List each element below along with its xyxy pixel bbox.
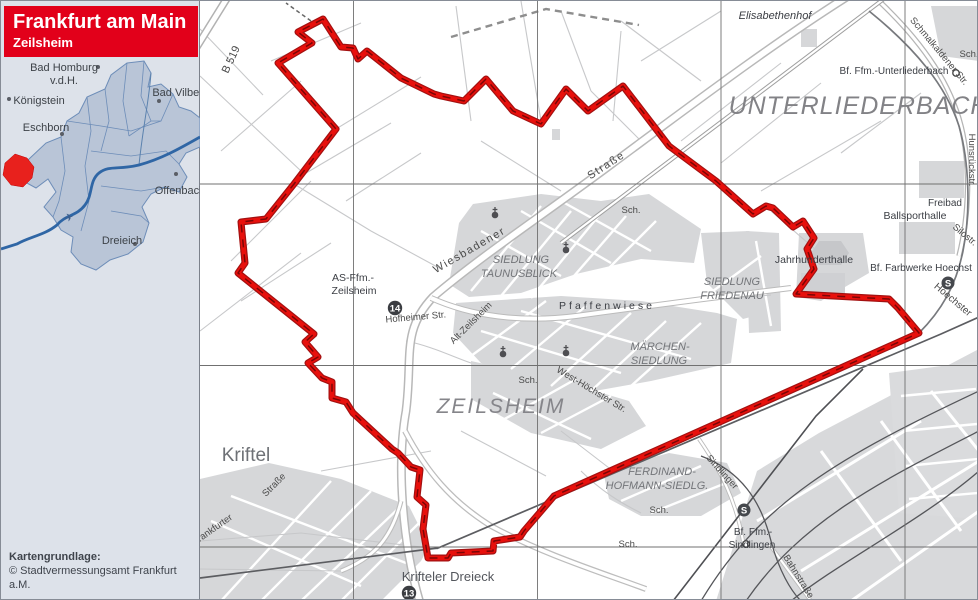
label-elisabethenhof: Elisabethenhof	[739, 10, 813, 22]
attribution-heading: Kartengrundlage:	[9, 550, 199, 564]
page-title: Frankfurt am Main	[13, 11, 198, 34]
inset-label-bad-vilbel: Bad Vilbel	[152, 87, 200, 99]
label-sch: Sch.	[621, 205, 640, 216]
label-bf-unterliederbach: Bf. Ffm.-Unterliederbach	[840, 66, 949, 77]
label-bf-sindlingen-2: Sindlingen	[729, 540, 776, 551]
sbahn-icon-label: S	[741, 506, 747, 517]
label-freibad: Freibad	[928, 198, 962, 209]
inset-label-bad-homburg: Bad Homburg	[30, 62, 98, 74]
label-sch: Sch.	[518, 375, 537, 386]
sbahn-icon: S	[738, 504, 751, 517]
inset-label-dreieich: Dreieich	[102, 235, 142, 247]
label-siedlung-taunusblick-1: SIEDLUNG	[493, 254, 550, 266]
label-siedlung-friedenau-1: SIEDLUNG	[704, 276, 761, 288]
label-as-ffm-zeilsheim-1: AS-Ffm.-	[332, 272, 374, 284]
label-zeilsheim: ZEILSHEIM	[436, 395, 566, 418]
inset-label-offenbach: Offenbach	[155, 185, 200, 197]
map-page: 14 13 S S B 519 Elisabethenhof Schmalkal…	[0, 0, 978, 600]
label-hunsrueckstr: Hunsrückstr.	[966, 134, 977, 187]
label-kriftel: Kriftel	[222, 445, 271, 466]
inset-label-bad-homburg-2: v.d.H.	[50, 75, 78, 87]
label-as-ffm-zeilsheim-2: Zeilsheim	[332, 285, 377, 297]
attribution: Kartengrundlage: © Stadtvermessungsamt F…	[9, 550, 199, 592]
label-bf-sindlingen-1: Bf. Ffm.-	[734, 527, 772, 538]
sidebar: Frankfurt am Main Zeilsheim	[1, 1, 200, 599]
label-ballsporthalle: Ballsporthalle	[883, 210, 946, 222]
label-pfaffenwiese: Pfaffenwiese	[559, 300, 655, 312]
junction-badge-13-label: 13	[404, 589, 415, 600]
label-jahrhunderthalle: Jahrhunderthalle	[775, 254, 853, 266]
label-siedlung-taunusblick-2: TAUNUSBLICK	[481, 268, 558, 280]
inset-label-koenigstein: Königstein	[13, 95, 64, 107]
label-siedlung-friedenau-2: FRIEDENAU	[700, 290, 764, 302]
label-maerchen-siedlung-1: MÄRCHEN-	[630, 341, 690, 353]
label-krifteler-dreieck: Krifteler Dreieck	[402, 569, 495, 584]
overview-inset-map: ✈ Bad Homburg v.d.H. Königstein Bad Vilb…	[1, 57, 200, 293]
label-bf-farbwerke: Bf. Farbwerke Hoechst	[870, 263, 972, 274]
map-title-panel: Frankfurt am Main Zeilsheim	[4, 6, 198, 57]
page-subtitle: Zeilsheim	[13, 35, 198, 50]
label-unterliederbach: UNTERLIEDERBACH	[729, 92, 978, 120]
attribution-source: © Stadtvermessungsamt Frankfurt a.M.	[9, 564, 199, 592]
label-sch: Sch.	[618, 539, 637, 550]
label-sch: Sch.	[959, 49, 978, 60]
label-sch: Sch.	[649, 505, 668, 516]
label-ferdinand-hofmann-2: HOFMANN-SIEDLG.	[606, 480, 709, 492]
label-maerchen-siedlung-2: SIEDLUNG	[631, 355, 688, 367]
junction-badge-13: 13	[402, 586, 416, 600]
inset-label-eschborn: Eschborn	[23, 122, 69, 134]
label-ferdinand-hofmann-1: FERDINAND-	[628, 466, 696, 478]
